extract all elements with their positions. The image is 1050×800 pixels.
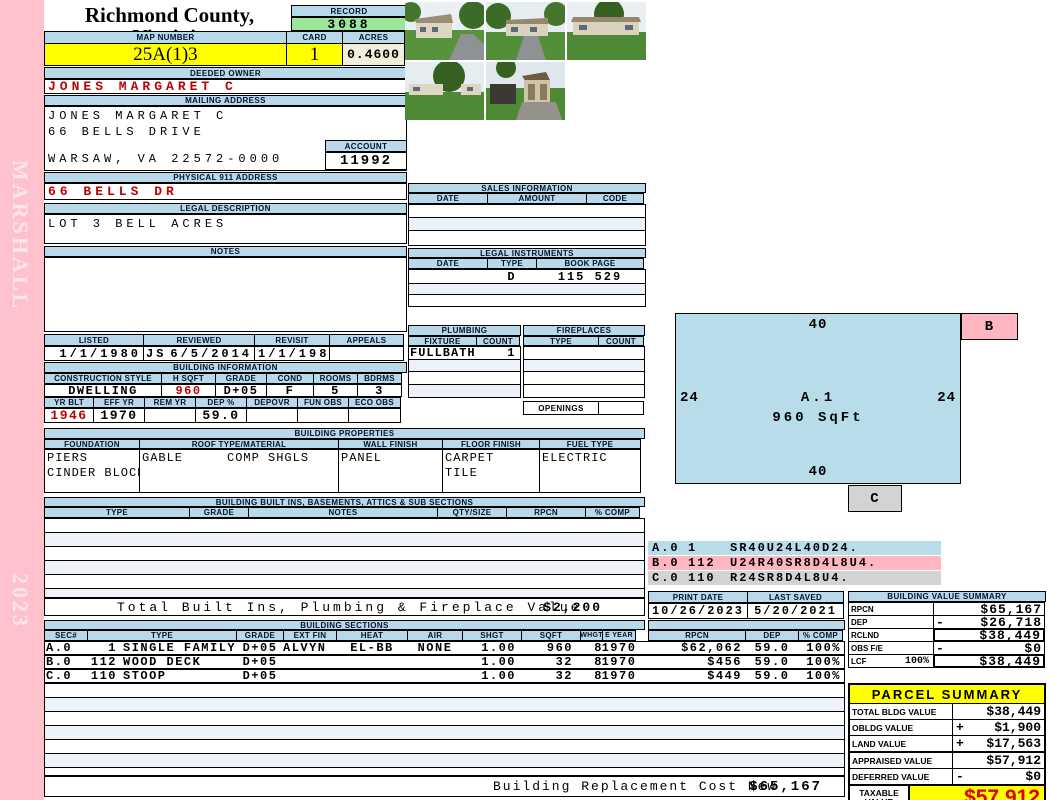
reviewed-label: REVIEWED	[143, 334, 255, 346]
bvs-value: $0	[1024, 641, 1042, 655]
building-properties-header: BUILDING PROPERTIES	[44, 428, 645, 439]
bs-air-label: AIR	[407, 630, 463, 641]
bs-row-border	[44, 641, 845, 655]
li-bookpage-label: BOOK PAGE	[536, 258, 644, 269]
mailing-name: JONES MARGARET C	[48, 109, 227, 123]
bdrms-value: 3	[357, 384, 402, 397]
floor-value-1: CARPET	[445, 451, 494, 466]
account-value: 11992	[325, 152, 407, 170]
building-value-summary-header: BUILDING VALUE SUMMARY	[848, 591, 1046, 602]
bvs-value: $26,718	[980, 615, 1042, 629]
bs-row-border	[44, 655, 845, 669]
marshall-watermark: MARSHALL	[7, 160, 33, 311]
sketch-area-label: A.1	[676, 390, 960, 406]
parcel-value: $57,912	[986, 753, 1041, 768]
legend-trace: SR40U24L40D24.	[730, 541, 859, 555]
dep-label: DEP %	[195, 397, 247, 408]
bs-dep-label: DEP	[745, 630, 799, 641]
effyr-value: 1970	[93, 408, 145, 423]
acres-value: 0.4600	[342, 43, 405, 66]
plumbing-header: PLUMBING	[408, 325, 521, 336]
remyr-value	[144, 408, 196, 423]
bs-grade-label: GRADE	[236, 630, 284, 641]
roof-label: ROOF TYPE/MATERIAL	[139, 439, 339, 449]
bvs-pct: 100%	[905, 656, 929, 667]
funobs-label: FUN OBS	[297, 397, 349, 408]
foundation-value-2: CINDER BLOCK	[47, 466, 140, 481]
cond-value: F	[266, 384, 314, 397]
grade-label: GRADE	[215, 373, 267, 384]
bvs-label: DEP	[848, 615, 934, 629]
sidebar: MARSHALL 2023	[0, 0, 44, 800]
parcel-value: $1,900	[994, 720, 1041, 735]
built-ins-total-label: Total Built Ins, Plumbing & Fireplace Va…	[117, 600, 581, 615]
plumbing-empty-row	[408, 371, 521, 385]
bvs-op: -	[936, 615, 945, 629]
building-sections-header: BUILDING SECTIONS	[44, 620, 645, 630]
building-replacement-value: $65,167	[749, 779, 822, 795]
building-value-summary: RPCN $65,167 DEP - $26,718 RCLND $38,449…	[848, 602, 1046, 668]
floor-value-2: TILE	[445, 466, 478, 481]
building-sections-header-right	[648, 620, 845, 630]
depovr-label: DEPOVR	[246, 397, 298, 408]
li-type-label: TYPE	[487, 258, 537, 269]
sketch-dim-bottom: 40	[676, 464, 960, 480]
legend-trace: R24SR8D4L8U4.	[730, 571, 850, 585]
hsqft-value: 960	[161, 384, 216, 397]
legend-code: 110	[688, 571, 730, 585]
fuel-label: FUEL TYPE	[539, 439, 641, 449]
legend-code: 112	[688, 556, 730, 570]
depovr-value	[246, 408, 298, 423]
sketch-section-b: B	[961, 313, 1018, 340]
fireplaces-header: FIREPLACES	[523, 325, 645, 336]
sales-empty-row	[408, 204, 646, 218]
parcel-summary: PARCEL SUMMARY TOTAL BLDG VALUE $38,449 …	[848, 683, 1046, 800]
wall-value: PANEL	[338, 449, 443, 493]
property-photo-3[interactable]	[567, 2, 646, 60]
property-photo-4[interactable]	[405, 62, 484, 120]
rooms-value: 5	[313, 384, 358, 397]
legend-row-c: C.0 110 R24SR8D4L8U4.	[648, 571, 941, 586]
legend-trace: U24R40SR8D4L8U4.	[730, 556, 877, 570]
parcel-value: $38,449	[986, 704, 1041, 719]
parcel-label: LAND VALUE	[850, 736, 953, 751]
building-sections-empty-rows	[44, 683, 845, 776]
parcel-op: +	[956, 720, 964, 735]
funobs-value	[297, 408, 349, 423]
remyr-label: REM YR	[144, 397, 196, 408]
bi-type-label: TYPE	[44, 507, 190, 518]
bi-grade-label: GRADE	[189, 507, 249, 518]
sales-code-label: CODE	[586, 193, 644, 204]
property-photo-5[interactable]	[486, 62, 565, 120]
parcel-label: APPRAISED VALUE	[850, 753, 953, 768]
legend-row-a: A.0 1 SR40U24L40D24.	[648, 541, 941, 556]
parcel-value: $17,563	[986, 736, 1041, 751]
parcel-op: +	[956, 736, 964, 751]
sales-information-header: SALES INFORMATION	[408, 183, 646, 193]
print-date-value: 10/26/2023	[648, 603, 748, 619]
bvs-value: $65,167	[980, 602, 1042, 616]
sketch-section-c: C	[848, 485, 902, 512]
built-ins-empty-rows	[44, 518, 645, 598]
map-number-value: 25A(1)3	[44, 43, 287, 66]
bs-eyear-label: E YEAR	[602, 630, 636, 641]
building-information-header: BUILDING INFORMATION	[44, 362, 407, 373]
account-label: ACCOUNT	[325, 140, 407, 152]
wall-label: WALL FINISH	[338, 439, 443, 449]
sales-empty-row	[408, 217, 646, 231]
legend-code: 1	[688, 541, 730, 555]
openings-value	[598, 401, 644, 415]
legend-sec: A.0	[648, 541, 688, 555]
bi-comp-label: % COMP	[585, 507, 640, 518]
fireplace-count-label: COUNT	[598, 336, 644, 346]
sketch-area-sqft: 960 SqFt	[676, 410, 960, 426]
parcel-value: $0	[1025, 769, 1041, 784]
print-date-label: PRINT DATE	[648, 591, 748, 603]
parcel-label: OBLDG VALUE	[850, 720, 953, 735]
plumbing-empty-row	[408, 384, 521, 398]
bvs-label: LCF	[851, 657, 867, 666]
parcel-summary-title: PARCEL SUMMARY	[850, 685, 1044, 704]
notes-header: NOTES	[44, 246, 407, 257]
floor-label: FLOOR FINISH	[442, 439, 540, 449]
taxable-value-label: TAXABLE VALUE	[850, 786, 910, 800]
legal-description-header: LEGAL DESCRIPTION	[44, 203, 407, 214]
physical-address-text: 66 BELLS DR	[48, 184, 178, 199]
bi-qty-label: QTY/SIZE	[437, 507, 507, 518]
sketch-dim-top: 40	[676, 317, 960, 333]
li-date-label: DATE	[408, 258, 488, 269]
building-replacement-row: Building Replacement Cost New $65,167	[44, 776, 845, 797]
sales-date-label: DATE	[408, 193, 488, 204]
built-ins-total-value: $2,200	[543, 600, 602, 615]
reviewed-date: 6/5/2014	[170, 347, 252, 361]
fireplaces-empty-row	[523, 371, 645, 385]
hsqft-label: H SQFT	[161, 373, 216, 384]
listed-label: LISTED	[44, 334, 144, 346]
effyr-label: EFF YR	[93, 397, 145, 408]
sketch-section-a: 40 24 24 A.1 960 SqFt 40	[675, 313, 961, 484]
record-value: 3088	[291, 17, 407, 31]
foundation-label: FOUNDATION	[44, 439, 140, 449]
legal-instruments-header: LEGAL INSTRUMENTS	[408, 248, 646, 258]
openings-label: OPENINGS	[523, 401, 599, 415]
plumbing-count-label: COUNT	[476, 336, 520, 346]
bs-comp-label: % COMP	[798, 630, 843, 641]
bs-sec-label: SEC#	[44, 630, 88, 641]
plumbing-row-border	[408, 346, 521, 360]
physical-address-box: 66 BELLS DR	[44, 183, 407, 200]
construction-style-label: CONSTRUCTION STYLE	[44, 373, 162, 384]
bvs-label: RCLND	[848, 628, 934, 642]
bs-extfin-label: EXT FIN	[283, 630, 337, 641]
ecoobs-label: ECO OBS	[348, 397, 401, 408]
bi-rpcn-label: RPCN	[506, 507, 586, 518]
fixture-label: FIXTURE	[408, 336, 477, 346]
notes-box	[44, 257, 407, 332]
taxable-value: $57,912	[910, 786, 1044, 800]
deeded-owner-value: JONES MARGARET C	[44, 79, 407, 94]
parcel-label: TOTAL BLDG VALUE	[850, 704, 953, 719]
sales-empty-row	[408, 230, 646, 246]
legal-description-box: LOT 3 BELL ACRES	[44, 214, 407, 244]
bs-sqft-label: SQFT	[521, 630, 581, 641]
physical-address-header: PHYSICAL 911 ADDRESS	[44, 172, 407, 183]
roof-type-value: GABLE	[142, 451, 183, 465]
mailing-address-header: MAILING ADDRESS	[44, 95, 407, 106]
legend-row-b: B.0 112 U24R40SR8D4L8U4.	[648, 556, 941, 571]
bvs-label: OBS F/E	[848, 641, 934, 655]
parcel-op: -	[956, 769, 964, 784]
bvs-value: $38,449	[979, 654, 1041, 668]
yrblt-label: YR BLT	[44, 397, 94, 408]
bs-rpcn-label: RPCN	[648, 630, 746, 641]
property-photo-1[interactable]	[405, 2, 484, 60]
record-label: RECORD	[291, 5, 407, 17]
bs-row-border	[44, 669, 845, 683]
revisit-label: REVISIT	[254, 334, 330, 346]
appeals-value	[329, 346, 404, 361]
fuel-value: ELECTRIC	[539, 449, 641, 493]
yrblt-value: 1946	[44, 408, 94, 423]
card-value: 1	[286, 43, 343, 66]
construction-style-value: DWELLING	[44, 384, 162, 397]
sales-amount-label: AMOUNT	[487, 193, 587, 204]
deeded-owner-text: JONES MARGARET C	[48, 79, 237, 94]
bs-shgt-label: SHGT	[462, 630, 522, 641]
property-photo-2[interactable]	[486, 2, 565, 60]
deeded-owner-header: DEEDED OWNER	[44, 67, 407, 79]
fireplace-type-label: TYPE	[523, 336, 599, 346]
property-record-card: MARSHALL 2023 Richmond County, Virginia …	[0, 0, 1050, 800]
bvs-op: -	[936, 641, 945, 655]
sketch-area: 40 24 24 A.1 960 SqFt 40 B C	[650, 300, 1048, 540]
year-watermark: 2023	[7, 573, 33, 629]
building-replacement-label: Building Replacement Cost New	[493, 779, 777, 794]
bvs-label: RPCN	[848, 602, 934, 616]
built-ins-header: BUILDING BUILT INS, BASEMENTS, ATTICS & …	[44, 497, 645, 507]
ecoobs-value	[348, 408, 401, 423]
grade-value: D+05	[215, 384, 267, 397]
mailing-city: WARSAW, VA 22572-0000	[48, 152, 283, 166]
li-empty-row	[408, 294, 646, 307]
bvs-value: $38,449	[979, 628, 1041, 642]
legend-sec: B.0	[648, 556, 688, 570]
last-saved-value: 5/20/2021	[747, 603, 844, 619]
listed-value: 1/1/1980	[44, 346, 144, 361]
parcel-label: DEFERRED VALUE	[850, 769, 953, 784]
dep-value: 59.0	[195, 408, 247, 423]
revisit-value: 1/1/1980	[254, 346, 330, 361]
bs-heat-label: HEAT	[336, 630, 408, 641]
li-row-border	[408, 269, 646, 284]
mailing-street: 66 BELLS DRIVE	[48, 125, 205, 139]
bi-notes-label: NOTES	[248, 507, 438, 518]
legend-sec: C.0	[648, 571, 688, 585]
bdrms-label: BDRMS	[357, 373, 402, 384]
foundation-value-1: PIERS	[47, 451, 88, 466]
bs-whgt-label: WHGT	[580, 630, 603, 641]
fireplaces-empty-row	[523, 384, 645, 398]
roof-material-value: COMP SHGLS	[227, 451, 309, 465]
appeals-label: APPEALS	[329, 334, 404, 346]
fireplaces-empty-row	[523, 346, 645, 360]
cond-label: COND	[266, 373, 314, 384]
sketch-legend: A.0 1 SR40U24L40D24. B.0 112 U24R40SR8D4…	[648, 541, 941, 586]
reviewed-by: JS	[146, 347, 166, 361]
last-saved-label: LAST SAVED	[747, 591, 844, 603]
rooms-label: ROOMS	[313, 373, 358, 384]
built-ins-total-row: Total Built Ins, Plumbing & Fireplace Va…	[44, 598, 645, 616]
bs-type-label: TYPE	[87, 630, 237, 641]
